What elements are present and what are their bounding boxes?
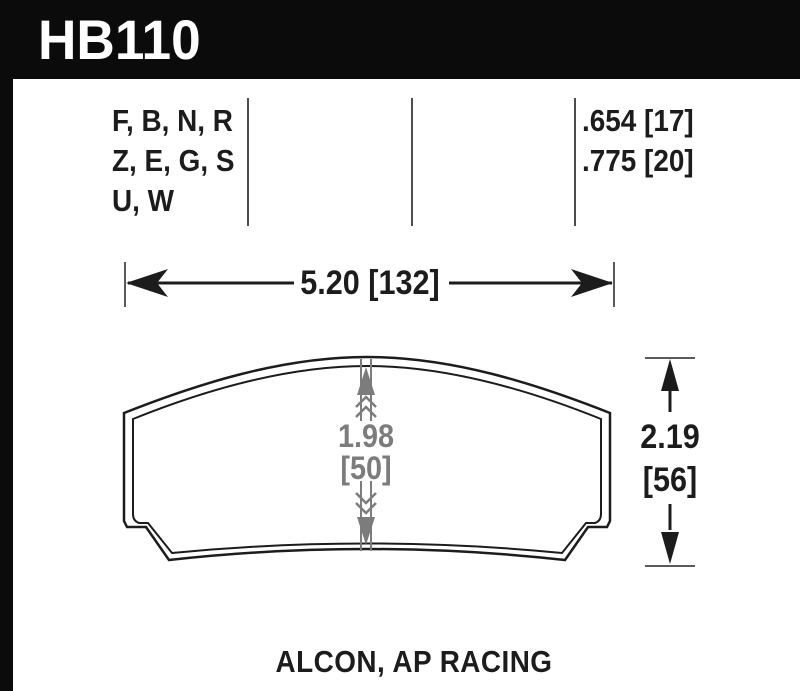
up-arrowhead-icon [357,367,375,395]
compound-codes-line: F, B, N, R [112,101,234,141]
compound-codes: F, B, N, R Z, E, G, S U, W [112,101,234,221]
compound-codes-line: U, W [112,181,234,221]
down-arrowhead-icon [661,532,679,564]
up-chevron-icon [356,407,376,417]
down-chevron-icon [356,493,376,503]
thickness-value-line: .775 [20] [582,141,694,181]
height-dimension-label-mm: [56] [643,463,697,497]
down-arrowhead-icon [357,517,375,545]
height-dimension-label-in: 2.19 [640,420,700,454]
applications-label: ALCON, AP RACING [276,645,553,679]
spec-sheet: HB110 [0,0,800,691]
thickness-values: .654 [17] .775 [20] [582,101,694,181]
center-thickness-label-in: 1.98 [338,420,394,452]
up-arrowhead-icon [661,359,679,391]
center-thickness-label-mm: [50] [340,452,391,484]
width-dimension-label: 5.20 [132] [300,266,440,300]
spec-table-divider-lines [248,98,575,226]
thickness-value-line: .654 [17] [582,101,694,141]
compound-codes-line: Z, E, G, S [112,141,234,181]
